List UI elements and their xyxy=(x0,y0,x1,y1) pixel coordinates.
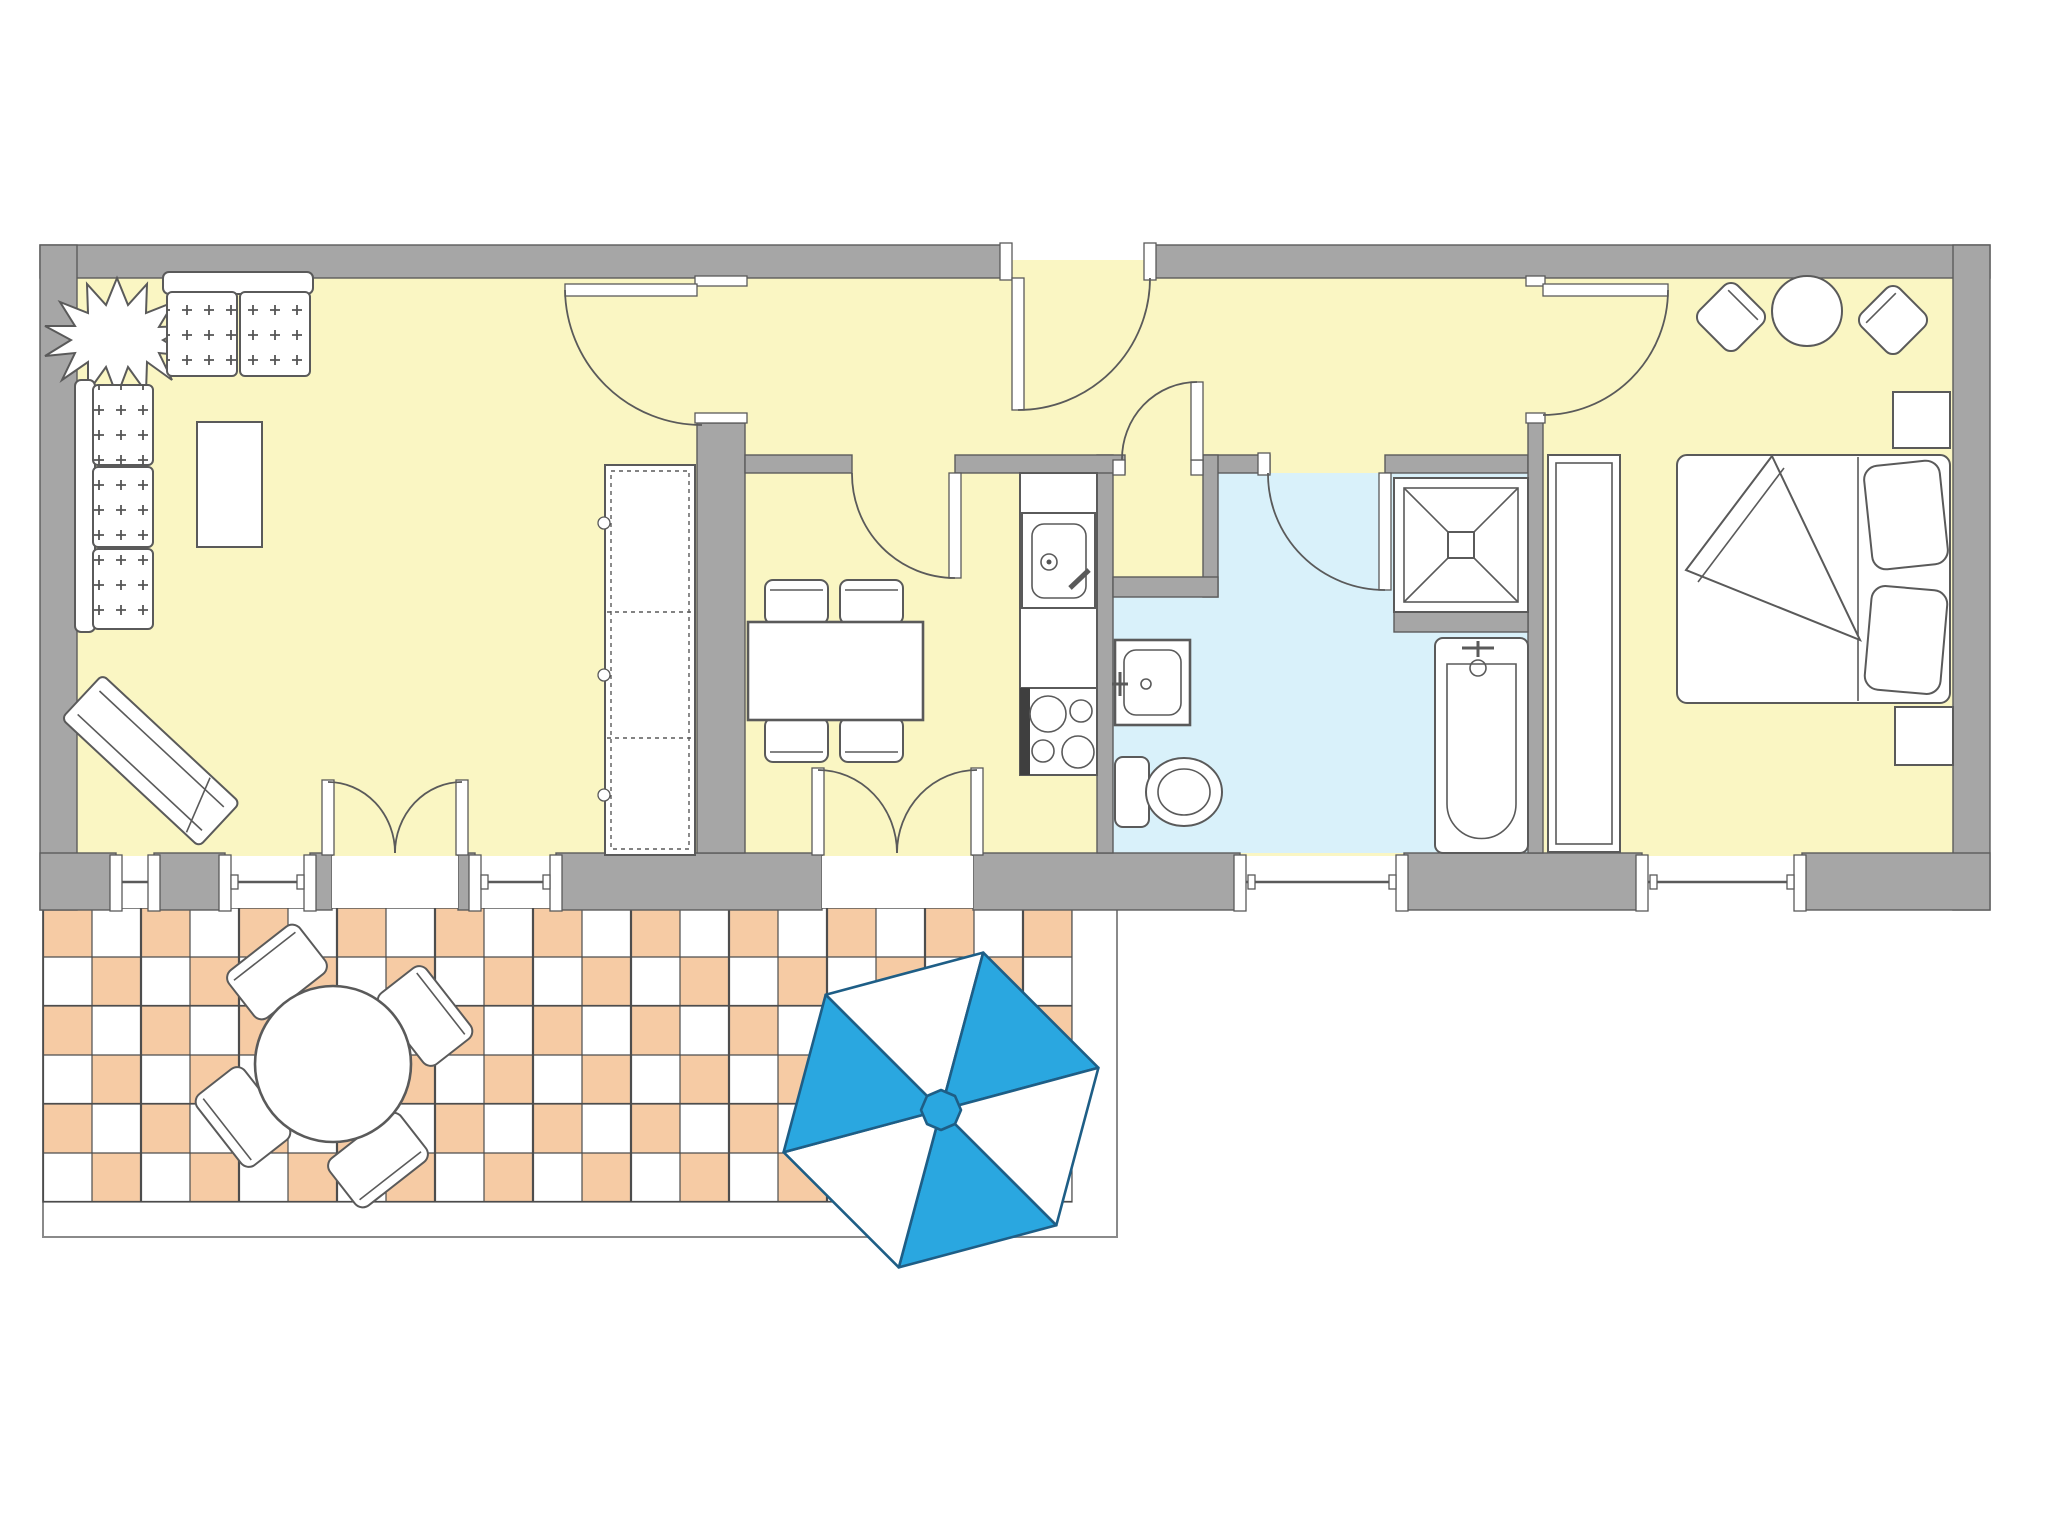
garden-round-table xyxy=(255,986,411,1142)
wall-hall-kitchen2 xyxy=(955,455,1125,473)
dining-table xyxy=(748,622,923,720)
niche-post-left xyxy=(1113,460,1125,475)
bottom-wall-seg xyxy=(1404,853,1642,910)
wall-hall-kitchen xyxy=(745,455,852,473)
wall-living-kitchen xyxy=(697,423,745,853)
bottom-wall-seg xyxy=(40,853,116,910)
wall-niche-right xyxy=(1203,455,1218,597)
nightstand-top xyxy=(1893,392,1950,448)
shower-cabin xyxy=(1394,478,1528,612)
wall-hall-bathroom2 xyxy=(1385,455,1528,473)
floor-plan-drawing xyxy=(0,0,2048,1538)
cooktop xyxy=(1020,688,1097,775)
bottom-wall-seg xyxy=(556,853,822,910)
bottom-wall-seg xyxy=(154,853,225,910)
bedroom-side-table xyxy=(1772,276,1842,346)
dining-chair-bottom-right xyxy=(840,718,903,762)
window-living-small xyxy=(110,855,160,911)
storage-niche-floor xyxy=(1113,460,1203,577)
kitchen-sink xyxy=(1022,513,1095,608)
coffee-table xyxy=(197,422,262,547)
wall-shower-partition xyxy=(1394,612,1528,632)
bathtub xyxy=(1435,638,1528,853)
bottom-wall-seg xyxy=(973,853,1240,910)
floor-plan-canvas xyxy=(0,0,2048,1538)
double-bed xyxy=(1677,455,1950,703)
window-living-left xyxy=(219,855,316,911)
bottom-wall-seg xyxy=(1802,853,1990,910)
wall-bathroom-bedroom xyxy=(1528,415,1543,853)
parasol-hub xyxy=(921,1090,961,1130)
three-seat-sofa xyxy=(75,380,153,632)
nightstand-bottom xyxy=(1895,707,1953,765)
window-bathroom xyxy=(1234,855,1408,911)
top-wall-right xyxy=(1150,245,1990,278)
dining-chair-top-left xyxy=(765,580,828,624)
kitchen-counter xyxy=(1020,473,1097,775)
two-seat-sofa xyxy=(163,272,313,376)
dining-chair-top-right xyxy=(840,580,903,624)
toilet xyxy=(1115,757,1222,827)
wall-niche-bottom xyxy=(1113,577,1218,597)
right-wall xyxy=(1953,245,1990,910)
bedroom-wardrobe xyxy=(1548,455,1620,852)
window-bedroom xyxy=(1636,855,1806,911)
wash-basin xyxy=(1112,640,1190,725)
niche-post-right xyxy=(1191,460,1203,475)
living-wardrobe xyxy=(598,465,695,855)
wall-kitchen-bathroom xyxy=(1097,455,1113,853)
dining-chair-bottom-left xyxy=(765,718,828,762)
window-living-right xyxy=(469,855,562,911)
